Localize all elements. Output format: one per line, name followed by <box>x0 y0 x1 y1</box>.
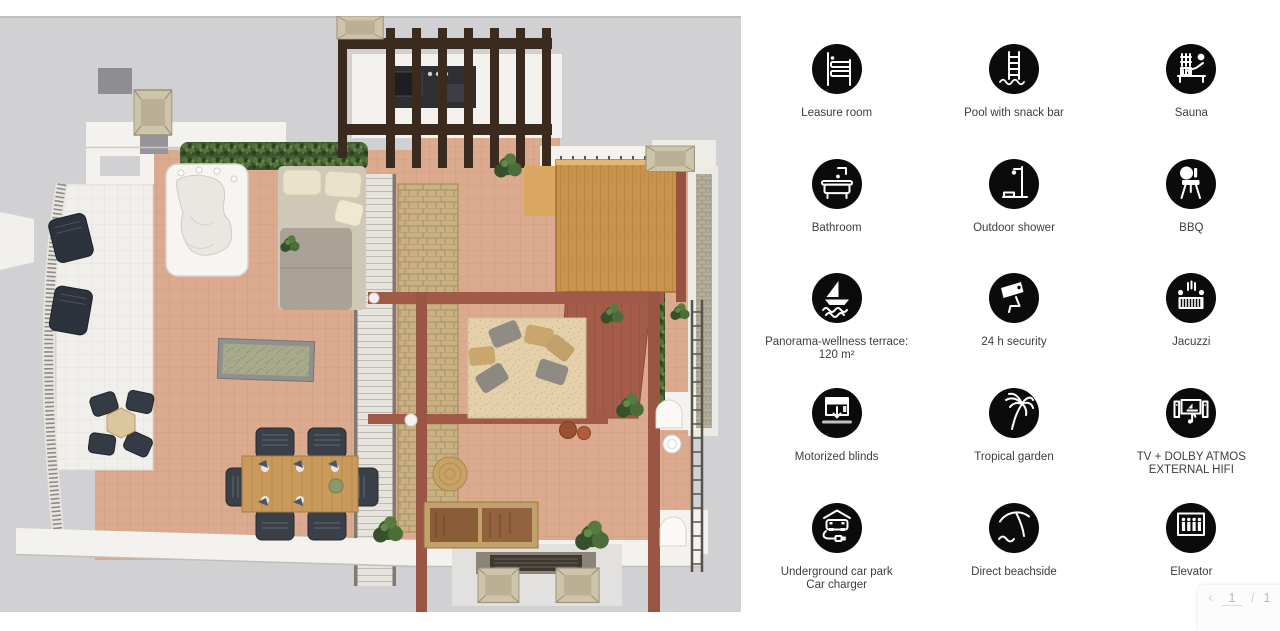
amenity-panorama-terrace: Panorama-wellness terrace: 120 m² <box>748 273 925 388</box>
hot-tub <box>166 164 248 276</box>
jacuzzi-icon <box>1166 273 1216 323</box>
sailboat-icon <box>812 273 862 323</box>
amenity-label: Pool with snack bar <box>964 107 1064 120</box>
amenity-label: TV + DOLBY ATMOS EXTERNAL HIFI <box>1137 451 1246 477</box>
tv-hifi-icon <box>1166 388 1216 438</box>
amenity-label: Tropical garden <box>974 451 1053 464</box>
amenity-car-park-charger: Underground car park Car charger <box>748 503 925 618</box>
floor-plan-panel <box>0 16 741 612</box>
amenity-tv-hifi: TV + DOLBY ATMOS EXTERNAL HIFI <box>1103 388 1280 503</box>
outdoor-shower-icon <box>989 159 1039 209</box>
amenity-outdoor-shower: Outdoor shower <box>925 159 1102 274</box>
amenity-security: 24 h security <box>925 273 1102 388</box>
floor-plan-illustration <box>0 16 741 612</box>
page-separator: / <box>1251 591 1254 605</box>
car-charger-icon <box>812 503 862 553</box>
amenity-label: Sauna <box>1175 107 1208 120</box>
amenity-label: 24 h security <box>981 336 1046 349</box>
bathtub-icon <box>812 159 862 209</box>
amenity-leasure-room: Leasure room <box>748 44 925 159</box>
amenity-jacuzzi: Jacuzzi <box>1103 273 1280 388</box>
bed-icon <box>812 44 862 94</box>
amenity-label: Outdoor shower <box>973 222 1055 235</box>
elevator-icon <box>1166 503 1216 553</box>
amenity-label: Jacuzzi <box>1172 336 1210 349</box>
amenity-tropical-garden: Tropical garden <box>925 388 1102 503</box>
amenity-label: Elevator <box>1170 566 1212 579</box>
current-page-input[interactable]: 1 <box>1222 591 1242 606</box>
lounge-rug <box>468 318 586 418</box>
amenity-label: Panorama-wellness terrace: 120 m² <box>765 336 908 362</box>
security-camera-icon <box>989 273 1039 323</box>
amenity-sauna: Sauna <box>1103 44 1280 159</box>
amenity-label: Leasure room <box>801 107 872 120</box>
planter-box <box>217 338 314 381</box>
bench-planter <box>424 502 538 548</box>
bbq-grill-icon <box>1166 159 1216 209</box>
amenity-label: Underground car park Car charger <box>781 566 893 592</box>
palm-tree-icon <box>989 388 1039 438</box>
amenity-bbq: BBQ <box>1103 159 1280 274</box>
amenity-bathroom: Bathroom <box>748 159 925 274</box>
straw-mat <box>433 457 467 491</box>
outdoor-kitchen <box>386 66 476 108</box>
amenity-motorized-blinds: Motorized blinds <box>748 388 925 503</box>
amenities-legend: Leasure room Pool with snack bar Sauna B… <box>748 44 1280 617</box>
sauna-icon <box>1166 44 1216 94</box>
amenity-pool-snack-bar: Pool with snack bar <box>925 44 1102 159</box>
pool-ladder-icon <box>989 44 1039 94</box>
amenity-label: Direct beachside <box>971 566 1057 579</box>
page-navigator: ‹ 1 / 1 <box>1198 585 1280 631</box>
amenity-label: Bathroom <box>812 222 862 235</box>
amenity-label: BBQ <box>1179 222 1203 235</box>
beach-umbrella-icon <box>989 503 1039 553</box>
amenity-label: Motorized blinds <box>795 451 879 464</box>
total-pages: 1 <box>1263 591 1270 605</box>
amenity-direct-beachside: Direct beachside <box>925 503 1102 618</box>
motorized-blinds-icon <box>812 388 862 438</box>
previous-page-button[interactable]: ‹ <box>1208 591 1213 604</box>
